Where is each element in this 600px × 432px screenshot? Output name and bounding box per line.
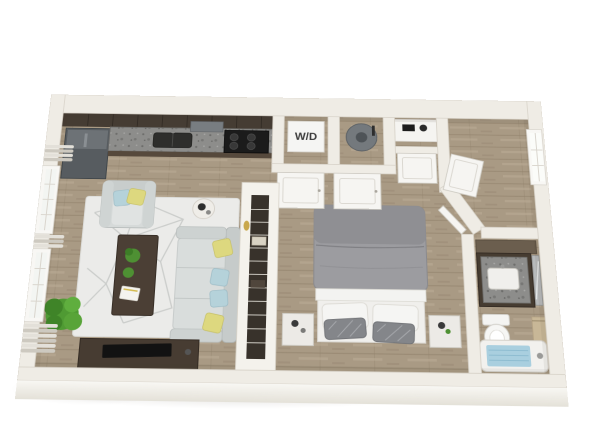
- pillow-yellow: [212, 238, 233, 258]
- vanity-sink: [487, 268, 519, 289]
- pillow-blue: [210, 268, 230, 287]
- wardrobe-partition: [235, 182, 279, 370]
- washer-dryer-label: W/D: [295, 132, 317, 143]
- duvet-fold: [314, 205, 426, 245]
- shelf-item: [402, 124, 415, 131]
- side-table: [192, 199, 215, 219]
- accent-pillow: [373, 322, 415, 345]
- linen-closet-door: [397, 153, 437, 183]
- nightstand-right: [429, 315, 462, 347]
- utility-closet: [346, 124, 377, 152]
- linen-closet: [395, 119, 438, 142]
- stove-cooktop: [224, 130, 269, 153]
- sofa: [170, 227, 241, 343]
- armchair: [99, 180, 156, 228]
- pillow-yellow: [126, 188, 146, 206]
- upper-cabinet: [476, 240, 537, 254]
- laundry-closet: W/D: [288, 121, 325, 152]
- coffee-table: [112, 235, 159, 316]
- book: [119, 286, 140, 301]
- range-hood: [190, 121, 223, 132]
- floorplan-3d-render: W/D: [0, 0, 600, 432]
- utility-closet-door: [334, 173, 381, 209]
- bathtub: [480, 340, 549, 372]
- tv: [102, 343, 172, 358]
- basket: [252, 237, 266, 246]
- closet-shelf: [395, 119, 438, 142]
- apartment-plan: W/D: [15, 95, 569, 409]
- laundry-closet-door: [277, 172, 324, 208]
- accent-pillow: [324, 318, 367, 340]
- sheet-fold: [316, 289, 427, 302]
- nightstand-left: [282, 313, 313, 345]
- shelf-item: [251, 280, 265, 288]
- vanity: [476, 253, 535, 307]
- refrigerator: [61, 128, 110, 179]
- bed: [313, 205, 430, 344]
- pillow-blue: [210, 289, 228, 307]
